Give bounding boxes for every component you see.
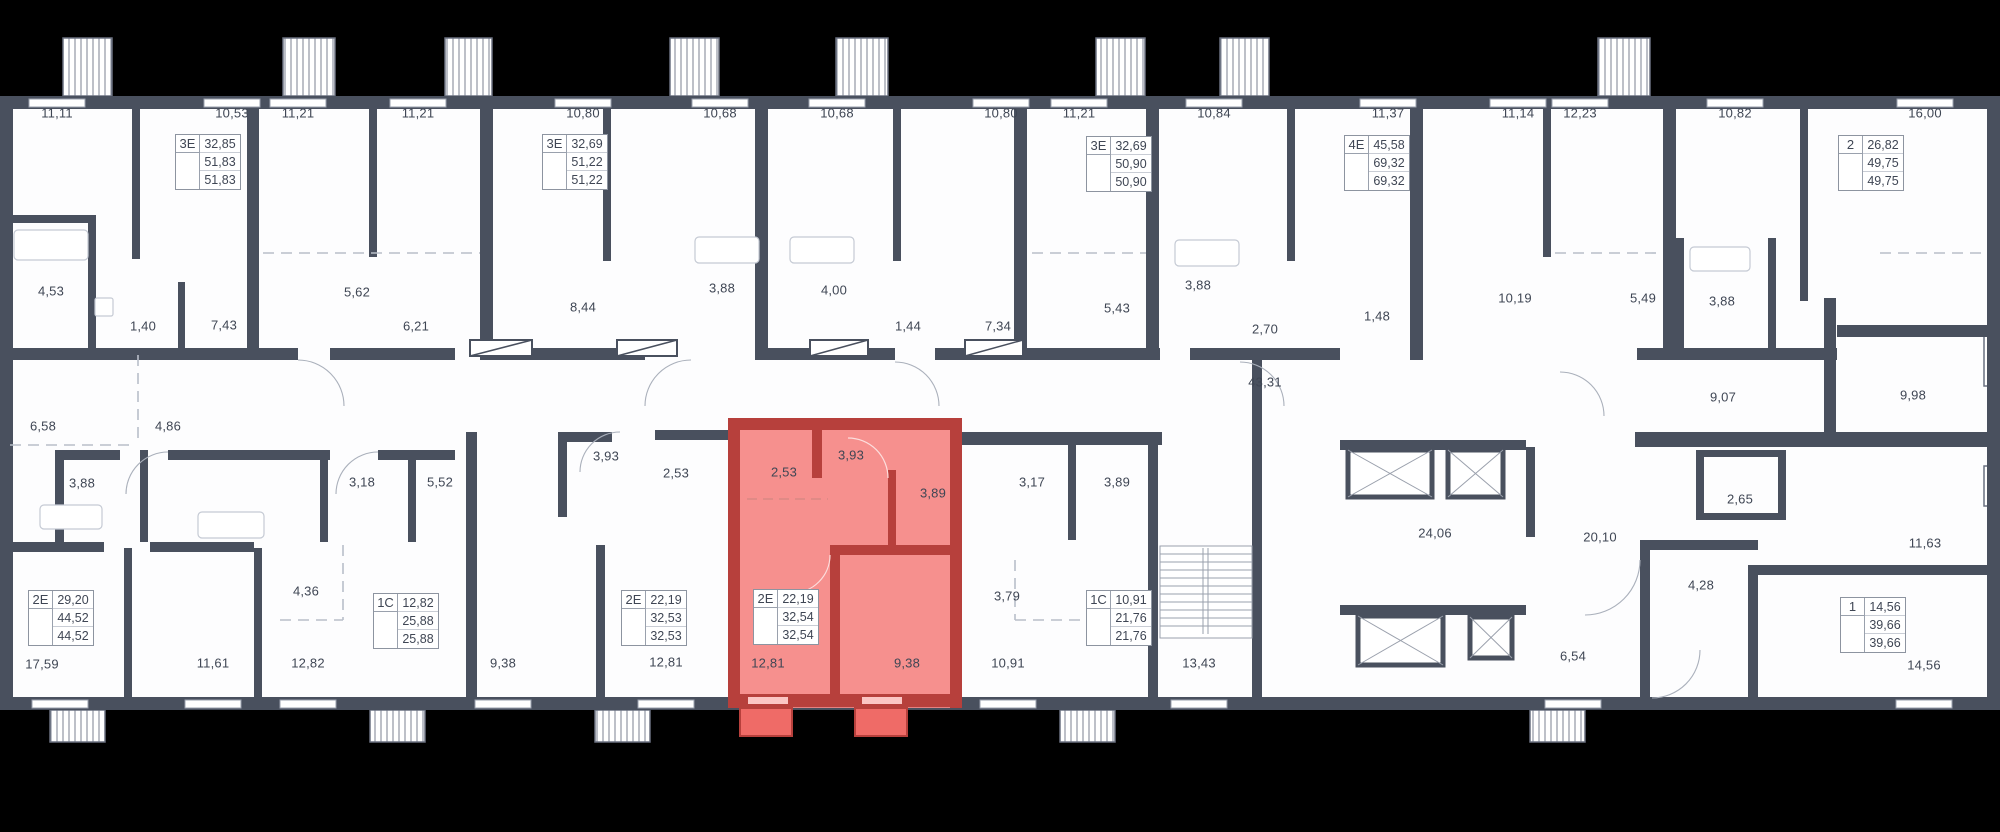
apartment-info-box: 2Е 29,20 44,52 44,52: [28, 590, 94, 646]
balcony-row-bottom: [50, 710, 1585, 742]
apartment-area: 49,75: [1863, 154, 1903, 172]
apartment-icon-cell: [754, 608, 778, 644]
apartment-area: 21,76: [1111, 609, 1151, 627]
room-area-label: 43,31: [1248, 375, 1282, 390]
room-area-label: 5,43: [1104, 301, 1130, 316]
room-area-label-highlighted: 12,81: [751, 656, 785, 671]
apartment-info-box: 3Е 32,69 50,90 50,90: [1086, 136, 1152, 192]
apartment-info-box: 2Е 22,19 32,53 32,53: [621, 590, 687, 646]
room-area-label: 11,21: [402, 106, 435, 121]
room-area-label: 7,34: [985, 319, 1011, 334]
room-area-label: 3,93: [593, 449, 619, 464]
apartment-type: 2: [1839, 136, 1863, 154]
apartment-area: 32,53: [646, 609, 686, 627]
room-area-label: 12,82: [291, 656, 325, 671]
apartment-area: 14,56: [1865, 598, 1905, 616]
building-body: [8, 96, 1992, 710]
apartment-area: 45,58: [1369, 136, 1409, 154]
apartment-area: 32,53: [646, 627, 686, 645]
room-area-label: 3,88: [1185, 278, 1211, 293]
room-area-label: 6,21: [403, 319, 429, 334]
room-area-label-highlighted: 3,89: [920, 486, 946, 501]
room-area-label: 12,23: [1563, 106, 1597, 121]
room-area-label: 10,91: [991, 656, 1025, 671]
apartment-info-box: 3Е 32,69 51,22 51,22: [542, 134, 608, 190]
apartment-area: 10,91: [1111, 591, 1151, 609]
room-area-label: 13,43: [1182, 656, 1216, 671]
room-area-label: 11,21: [282, 106, 315, 121]
apartment-icon-cell: [1087, 609, 1111, 645]
room-area-label: 9,98: [1900, 388, 1926, 403]
apartment-area: 69,32: [1369, 172, 1409, 190]
room-area-label: 10,19: [1498, 291, 1532, 306]
apartment-area: 50,90: [1111, 155, 1151, 173]
apartment-area: 51,83: [200, 153, 240, 171]
room-area-label: 1,40: [130, 319, 156, 334]
apartment-info-box-highlighted[interactable]: 2Е 22,19 32,54 32,54: [753, 589, 819, 645]
room-area-label: 6,58: [30, 419, 56, 434]
room-area-label: 10,68: [820, 106, 854, 121]
apartment-area: 29,20: [53, 591, 93, 609]
room-area-label: 16,00: [1908, 106, 1942, 121]
apartment-type: 2Е: [622, 591, 646, 609]
room-area-label: 2,53: [663, 466, 689, 481]
room-area-label: 4,00: [821, 283, 847, 298]
apartment-area: 25,88: [398, 630, 438, 648]
apartment-area: 51,22: [567, 171, 607, 189]
apartment-info-box: 4Е 45,58 69,32 69,32: [1344, 135, 1410, 191]
apartment-area: 51,22: [567, 153, 607, 171]
room-area-label: 4,86: [155, 419, 181, 434]
room-area-label: 11,21: [1063, 106, 1096, 121]
apartment-type: 2Е: [754, 590, 778, 608]
room-area-label-highlighted: 3,93: [838, 448, 864, 463]
room-area-label: 3,17: [1019, 475, 1045, 490]
apartment-area: 21,76: [1111, 627, 1151, 645]
apartment-area: 32,69: [567, 135, 607, 153]
room-area-label: 11,61: [197, 656, 230, 671]
room-area-label: 9,38: [490, 656, 516, 671]
apartment-type: 2Е: [29, 591, 53, 609]
apartment-area: 51,83: [200, 171, 240, 189]
room-area-label: 10,80: [984, 106, 1018, 121]
room-area-label: 2,65: [1727, 492, 1753, 507]
apartment-area: 22,19: [646, 591, 686, 609]
room-area-label: 3,88: [709, 281, 735, 296]
room-area-label: 4,36: [293, 584, 319, 599]
apartment-info-box: 1С 12,82 25,88 25,88: [373, 593, 439, 649]
balcony-row-top: [63, 38, 1650, 96]
room-area-label: 3,89: [1104, 475, 1130, 490]
apartment-area: 39,66: [1865, 616, 1905, 634]
apartment-type: 1С: [1087, 591, 1111, 609]
apartment-area: 69,32: [1369, 154, 1409, 172]
apartment-type: 1: [1841, 598, 1865, 616]
room-area-label: 3,88: [1709, 294, 1735, 309]
room-area-label-highlighted: 9,38: [894, 656, 920, 671]
highlighted-apartment[interactable]: [728, 418, 962, 736]
apartment-icon-cell: [374, 612, 398, 648]
apartment-icon-cell: [176, 153, 200, 189]
room-area-label: 17,59: [25, 657, 59, 672]
room-area-label: 10,68: [703, 106, 737, 121]
apartment-area: 32,54: [778, 608, 818, 626]
room-area-label: 3,79: [994, 589, 1020, 604]
apartment-info-box: 3Е 32,85 51,83 51,83: [175, 134, 241, 190]
apartment-info-box: 1С 10,91 21,76 21,76: [1086, 590, 1152, 646]
floor-plan-stage: 11,11 10,53 11,21 11,21 10,80 10,68 10,6…: [0, 0, 2000, 832]
room-area-label: 24,06: [1418, 526, 1452, 541]
room-area-label: 10,80: [566, 106, 600, 121]
apartment-info-box: 1 14,56 39,66 39,66: [1840, 597, 1906, 653]
apartment-type: 4Е: [1345, 136, 1369, 154]
room-area-label: 10,53: [215, 106, 249, 121]
room-area-label: 8,44: [570, 300, 596, 315]
apartment-area: 26,82: [1863, 136, 1903, 154]
apartment-icon-cell: [1841, 616, 1865, 652]
room-area-label: 3,18: [349, 475, 375, 490]
apartment-area: 32,85: [200, 135, 240, 153]
apartment-type: 3Е: [543, 135, 567, 153]
apartment-area: 49,75: [1863, 172, 1903, 190]
room-area-label: 11,63: [1909, 536, 1942, 551]
room-area-label: 12,81: [649, 655, 683, 670]
room-area-label: 6,54: [1560, 649, 1586, 664]
room-area-label: 20,10: [1583, 530, 1617, 545]
apartment-area: 32,69: [1111, 137, 1151, 155]
room-area-label: 9,07: [1710, 390, 1736, 405]
apartment-icon-cell: [1839, 154, 1863, 190]
room-area-label: 2,70: [1252, 322, 1278, 337]
room-area-label-highlighted: 2,53: [771, 465, 797, 480]
apartment-area: 44,52: [53, 609, 93, 627]
apartment-icon-cell: [1087, 155, 1111, 191]
room-area-label: 5,49: [1630, 291, 1656, 306]
apartment-icon-cell: [1345, 154, 1369, 190]
apartment-area: 12,82: [398, 594, 438, 612]
apartment-type: 3Е: [1087, 137, 1111, 155]
apartment-icon-cell: [543, 153, 567, 189]
apartment-info-box: 2 26,82 49,75 49,75: [1838, 135, 1904, 191]
room-area-label: 5,52: [427, 475, 453, 490]
room-area-label: 14,56: [1907, 658, 1941, 673]
apartment-area: 44,52: [53, 627, 93, 645]
room-area-label: 11,37: [1372, 106, 1405, 121]
room-area-label: 3,88: [69, 476, 95, 491]
room-area-label: 4,28: [1688, 578, 1714, 593]
room-area-label: 7,43: [211, 318, 237, 333]
room-area-label: 10,84: [1197, 106, 1231, 121]
staircase: [1160, 546, 1252, 638]
apartment-area: 22,19: [778, 590, 818, 608]
floor-plan: [0, 0, 2000, 832]
apartment-area: 39,66: [1865, 634, 1905, 652]
room-area-label: 10,82: [1718, 106, 1752, 121]
apartment-area: 32,54: [778, 626, 818, 644]
room-area-label: 1,44: [895, 319, 921, 334]
apartment-type: 3Е: [176, 135, 200, 153]
room-area-label: 5,62: [344, 285, 370, 300]
room-area-label: 11,11: [41, 106, 73, 121]
apartment-area: 50,90: [1111, 173, 1151, 191]
room-area-label: 11,14: [1502, 106, 1535, 121]
apartment-area: 25,88: [398, 612, 438, 630]
room-area-label: 1,48: [1364, 309, 1390, 324]
apartment-type: 1С: [374, 594, 398, 612]
apartment-icon-cell: [29, 609, 53, 645]
room-area-label: 4,53: [38, 284, 64, 299]
apartment-icon-cell: [622, 609, 646, 645]
